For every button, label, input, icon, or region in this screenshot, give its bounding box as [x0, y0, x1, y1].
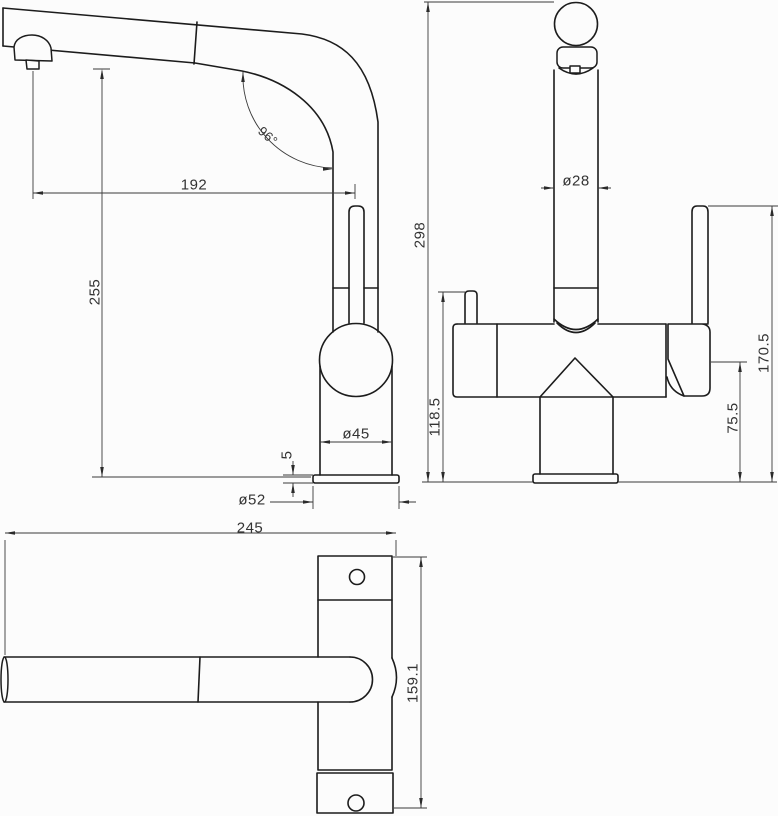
drawing-linework: [0, 0, 778, 816]
dim-label-spout-tube-diameter: ø28: [562, 173, 589, 190]
ball-joint: [320, 324, 393, 397]
base-flange-front: [533, 474, 618, 483]
front-view: [453, 3, 710, 484]
side-lever: [349, 206, 364, 323]
cap-screw-top: [350, 570, 365, 585]
dim-label-body-depth: 159.1: [405, 663, 422, 703]
dim-label-side-knob-height: 118.5: [427, 398, 444, 437]
dim-label-base-plate-thickness: 5: [279, 451, 296, 460]
dim-label-handle-hub-height: 75.5: [725, 402, 742, 433]
nozzle-front: [570, 66, 580, 73]
side-knob: [465, 291, 477, 323]
front-lever: [692, 206, 708, 323]
dim-label-base-plate-diameter: ø52: [238, 492, 265, 509]
spout-end-circle: [555, 3, 598, 46]
dim-label-overall-length: 245: [237, 520, 264, 537]
dim-label-spout-reach: 192: [181, 177, 208, 194]
aerator-dome: [14, 35, 52, 61]
spout-outlet-top: [1, 657, 8, 702]
nozzle: [26, 60, 39, 69]
technical-drawing-canvas: 192 96° 255 ø45 5 ø52 298 ø28 118.5 75.5…: [0, 0, 778, 816]
base-flange-side: [313, 475, 399, 483]
dim-label-spout-clearance: 255: [87, 279, 104, 306]
spout-head-front: [557, 47, 597, 68]
cap-screw-bottom: [348, 795, 364, 811]
dim-label-body-diameter: ø45: [342, 426, 369, 443]
side-view: [3, 8, 399, 483]
dim-label-lever-top-height: 170.5: [756, 333, 773, 373]
top-view: [1, 556, 397, 813]
dim-label-overall-height: 298: [412, 222, 429, 249]
